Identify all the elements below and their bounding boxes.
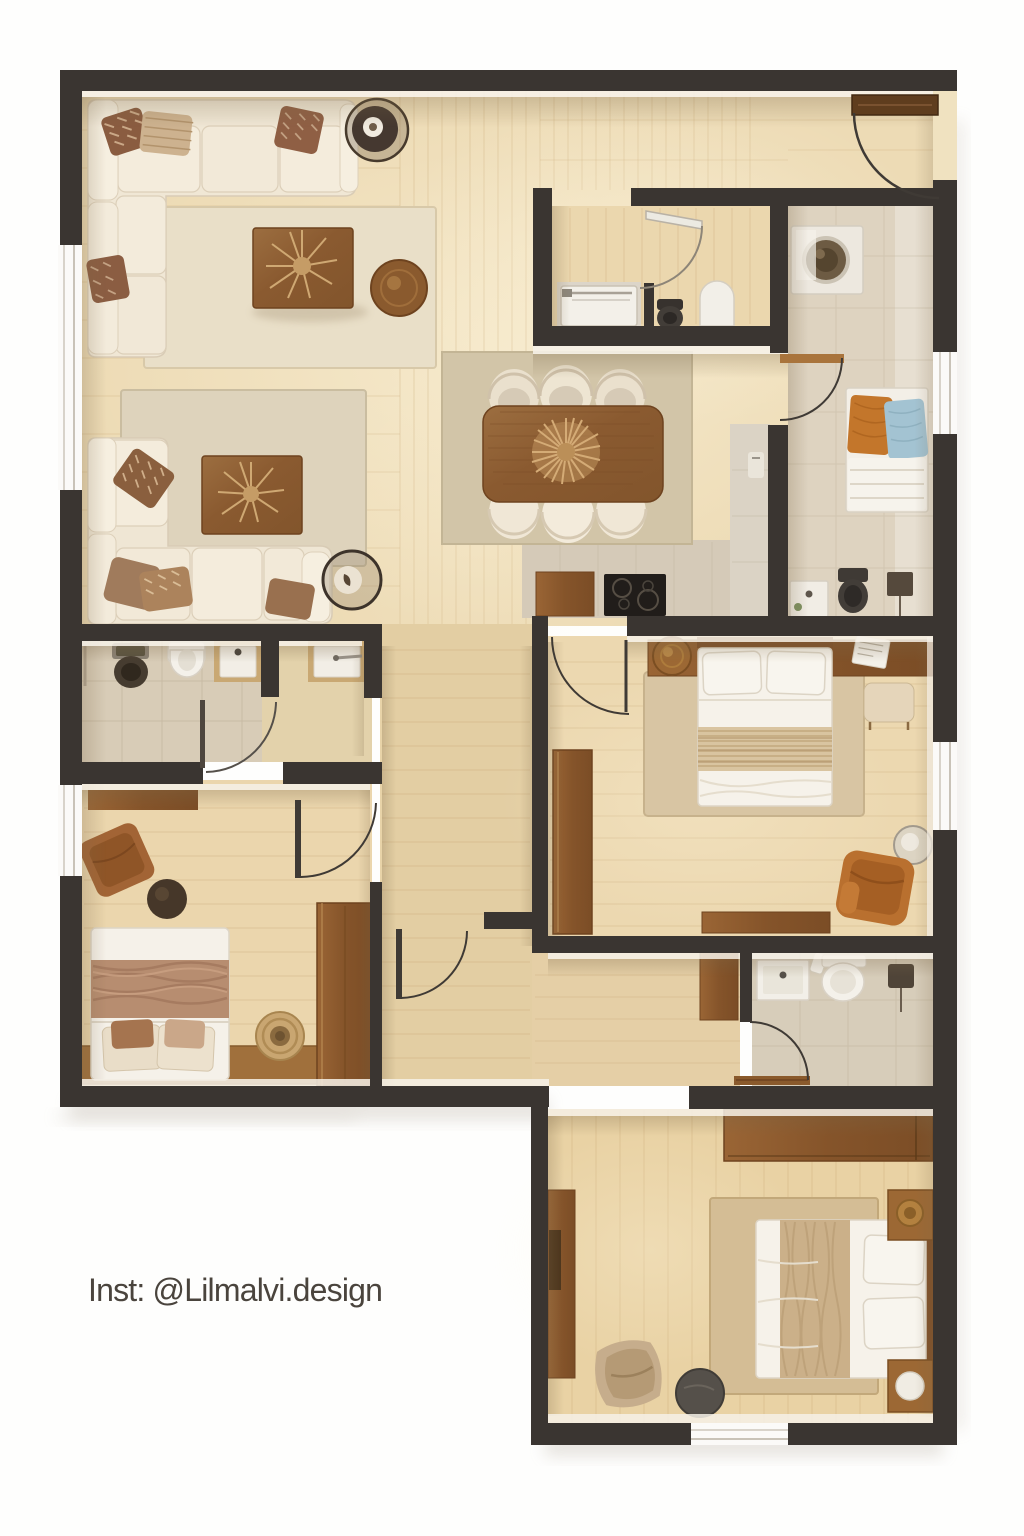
svg-text:Inst: @Lilmalvi.design: Inst: @Lilmalvi.design xyxy=(88,1272,382,1308)
